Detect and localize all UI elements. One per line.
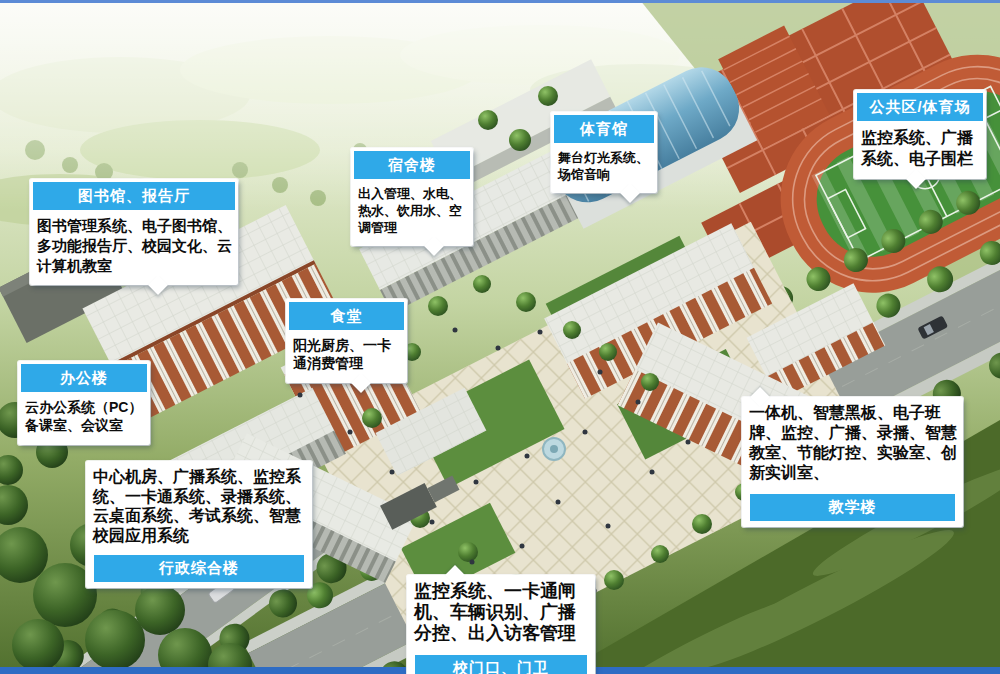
callout-library-body: 图书管理系统、电子图书馆、多功能报告厅、校园文化、云计算机教室 <box>30 210 238 285</box>
callout-canteen-body: 阳光厨房、一卡通消费管理 <box>286 330 407 383</box>
callout-gate: 监控系统、一卡通闸机、车辆识别、广播分控、出入访客管理 校门口、门卫 <box>407 575 595 674</box>
callout-public-area-body: 监控系统、广播系统、电子围栏 <box>854 121 986 179</box>
callout-dormitory-title: 宿舍楼 <box>354 151 470 179</box>
callout-admin-body: 中心机房、广播系统、监控系统、一卡通系统、录播系统、云桌面系统、考试系统、智慧校… <box>86 461 312 555</box>
callout-gymnasium-body: 舞台灯光系统、场馆音响 <box>551 143 657 193</box>
callout-teaching-title: 教学楼 <box>750 494 955 521</box>
callout-gymnasium-title: 体育馆 <box>554 115 654 143</box>
callout-office-body: 云办公系统（PC）备课室、会议室 <box>18 392 150 445</box>
fountain <box>543 438 565 460</box>
top-border-line <box>0 0 1000 3</box>
callout-office-title: 办公楼 <box>21 364 147 392</box>
callout-dormitory: 宿舍楼 出入管理、水电、热水、饮用水、空调管理 <box>351 148 473 246</box>
callout-canteen-title: 食堂 <box>289 302 404 330</box>
callout-admin: 中心机房、广播系统、监控系统、一卡通系统、录播系统、云桌面系统、考试系统、智慧校… <box>86 461 312 588</box>
callout-teaching-body: 一体机、智慧黑板、电子班牌、监控、广播、录播、智慧教室、节能灯控、实验室、创新实… <box>742 397 963 494</box>
callout-canteen: 食堂 阳光厨房、一卡通消费管理 <box>286 299 407 383</box>
callout-dormitory-body: 出入管理、水电、热水、饮用水、空调管理 <box>351 179 473 246</box>
callout-public-area: 公共区/体育场 监控系统、广播系统、电子围栏 <box>854 90 986 179</box>
callout-library: 图书馆、报告厅 图书管理系统、电子图书馆、多功能报告厅、校园文化、云计算机教室 <box>30 179 238 285</box>
callout-gate-title: 校门口、门卫 <box>415 655 587 674</box>
callout-admin-title: 行政综合楼 <box>94 555 304 582</box>
callout-gymnasium: 体育馆 舞台灯光系统、场馆音响 <box>551 112 657 193</box>
callout-teaching: 一体机、智慧黑板、电子班牌、监控、广播、录播、智慧教室、节能灯控、实验室、创新实… <box>742 397 963 527</box>
smart-campus-diagram: 图书馆、报告厅 图书管理系统、电子图书馆、多功能报告厅、校园文化、云计算机教室 … <box>0 0 1000 674</box>
callout-public-area-title: 公共区/体育场 <box>857 93 983 121</box>
callout-library-title: 图书馆、报告厅 <box>33 182 235 210</box>
callout-gate-body: 监控系统、一卡通闸机、车辆识别、广播分控、出入访客管理 <box>407 575 595 655</box>
callout-office: 办公楼 云办公系统（PC）备课室、会议室 <box>18 361 150 445</box>
